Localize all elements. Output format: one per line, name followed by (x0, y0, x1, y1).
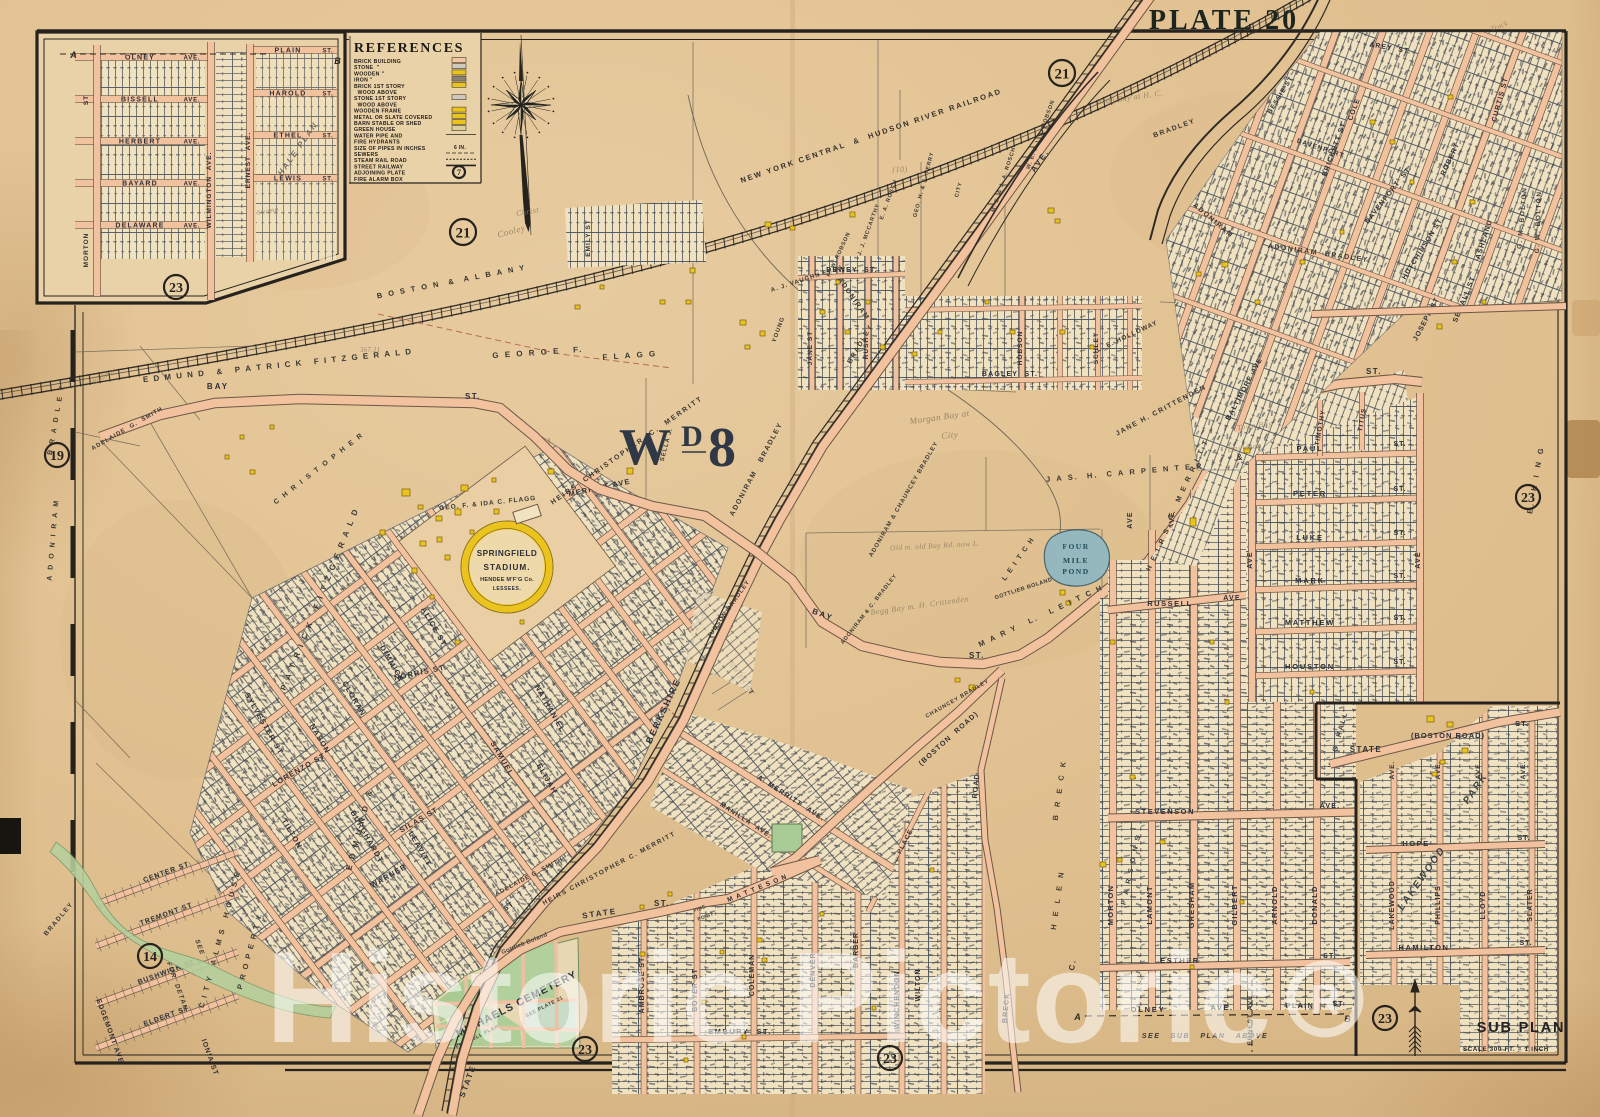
svg-text:WILMINGTON AVE.: WILMINGTON AVE. (206, 152, 213, 229)
svg-text:HOBSON: HOBSON (1017, 331, 1024, 366)
svg-text:8: 8 (708, 417, 736, 479)
svg-text:ST.: ST. (1393, 530, 1406, 537)
svg-text:HOUSTON: HOUSTON (1285, 662, 1335, 671)
svg-text:AVE.: AVE. (1389, 761, 1396, 780)
svg-text:ETHEL: ETHEL (274, 133, 303, 140)
svg-text:RUSSELL: RUSSELL (1147, 599, 1193, 608)
svg-text:GILBERT: GILBERT (1230, 884, 1239, 925)
svg-text:PLATE 20: PLATE 20 (1149, 5, 1299, 36)
svg-text:EMILY ST: EMILY ST (585, 219, 592, 256)
svg-text:MORTON: MORTON (83, 233, 90, 268)
svg-text:AVE: AVE (1415, 551, 1422, 568)
svg-text:ADJOINING PLATE: ADJOINING PLATE (354, 171, 406, 177)
svg-text:ST.: ST. (1393, 573, 1406, 580)
svg-text:FIRE HYDRANTS: FIRE HYDRANTS (354, 140, 400, 146)
svg-text:ST.: ST. (1366, 367, 1382, 376)
svg-text:HAROLD: HAROLD (269, 91, 306, 98)
svg-text:OLNEY: OLNEY (125, 55, 155, 62)
svg-text:WOOD ABOVE: WOOD ABOVE (354, 90, 397, 96)
svg-text:ST.: ST. (1393, 486, 1406, 493)
svg-text:MILE: MILE (1063, 556, 1089, 565)
svg-text:PETER: PETER (1293, 489, 1327, 498)
svg-text:ST.: ST. (1323, 953, 1337, 960)
svg-text:PLAIN: PLAIN (275, 48, 302, 55)
svg-text:ST.: ST. (1393, 441, 1406, 448)
svg-text:ST.: ST. (322, 49, 333, 55)
svg-text:STADIUM.: STADIUM. (484, 563, 531, 572)
svg-text:AVE.: AVE. (184, 98, 201, 104)
svg-text:ST.: ST. (1515, 719, 1529, 728)
svg-text:ST.: ST. (322, 134, 333, 140)
svg-text:AVE: AVE (1247, 551, 1254, 568)
svg-text:SEWERS: SEWERS (354, 152, 379, 158)
svg-text:BARN STABLE OR SHED: BARN STABLE OR SHED (354, 121, 422, 127)
svg-text:AVE.: AVE. (1520, 761, 1527, 780)
svg-text:367.11: 367.11 (359, 346, 381, 354)
svg-text:LAMONT: LAMONT (1145, 885, 1154, 924)
svg-text:STEAM RAIL ROAD: STEAM RAIL ROAD (354, 158, 407, 164)
svg-text:23: 23 (169, 281, 183, 296)
svg-text:SCALE 300 FT. = 1 INCH: SCALE 300 FT. = 1 INCH (1463, 1047, 1549, 1053)
svg-text:ERNEST AVE.: ERNEST AVE. (245, 132, 252, 189)
svg-text:Historic Pictoric: Historic Pictoric (266, 926, 1272, 1070)
svg-text:BRICK BUILDING: BRICK BUILDING (354, 59, 401, 65)
svg-text:A: A (69, 50, 78, 60)
svg-text:AVE: AVE (1223, 595, 1240, 602)
svg-text:ST.: ST. (1519, 940, 1532, 947)
svg-text:&: & (1237, 453, 1244, 462)
svg-text:ST.: ST. (465, 392, 481, 401)
svg-text:BAGLEY ST.: BAGLEY ST. (982, 371, 1038, 378)
svg-text:ST.: ST. (1517, 835, 1530, 842)
svg-text:ST.: ST. (1393, 615, 1406, 622)
svg-text:ARNOLD: ARNOLD (1270, 885, 1279, 924)
svg-text:BRICK 1ST STORY: BRICK 1ST STORY (354, 84, 405, 90)
svg-text:SUB PLAN: SUB PLAN (1477, 1020, 1566, 1036)
svg-text:STREET RAILWAY: STREET RAILWAY (354, 164, 403, 170)
svg-text:ST.: ST. (654, 899, 670, 908)
svg-text:HERBERT: HERBERT (119, 139, 161, 146)
svg-text:23: 23 (1521, 491, 1535, 506)
svg-text:STONE ”: STONE ” (354, 65, 380, 71)
svg-text:14: 14 (143, 950, 157, 965)
svg-text:STATE: STATE (1350, 745, 1383, 754)
svg-text:LEWIS: LEWIS (274, 176, 302, 183)
svg-text:AVE.: AVE. (1320, 803, 1341, 810)
svg-text:23: 23 (1378, 1012, 1392, 1027)
svg-text:ST.: ST. (322, 177, 333, 183)
svg-text:ST.: ST. (969, 651, 985, 660)
svg-text:(BOSTON ROAD): (BOSTON ROAD) (1411, 731, 1485, 740)
svg-text:PHILLIPS: PHILLIPS (1435, 885, 1442, 925)
svg-text:(10): (10) (892, 165, 907, 174)
svg-text:AVE: AVE (1127, 511, 1134, 528)
svg-text:WATER PIPE AND: WATER PIPE AND (354, 133, 403, 139)
svg-text:MARK: MARK (1295, 576, 1325, 585)
svg-text:21: 21 (1055, 66, 1070, 82)
svg-text:MATTHEW: MATTHEW (1285, 618, 1335, 627)
svg-text:LESSEES.: LESSEES. (493, 586, 522, 592)
svg-text:REFERENCES: REFERENCES (354, 41, 464, 56)
svg-text:GREEN HOUSE: GREEN HOUSE (354, 127, 396, 133)
svg-text:WOODEN FRAME: WOODEN FRAME (354, 109, 402, 115)
svg-text:HENDEE M'F'G Co.: HENDEE M'F'G Co. (480, 577, 534, 583)
svg-text:19: 19 (50, 449, 64, 464)
svg-text:HAMILTON: HAMILTON (1399, 943, 1450, 952)
svg-text:IRON ”: IRON ” (354, 78, 373, 84)
svg-text:WOOD ABOVE: WOOD ABOVE (354, 102, 397, 108)
svg-text:DONALD: DONALD (1310, 885, 1319, 924)
svg-text:W: W (619, 419, 671, 476)
svg-text:JANE ST: JANE ST (807, 331, 814, 365)
svg-text:R: R (1310, 976, 1340, 1023)
svg-text:7: 7 (457, 168, 461, 177)
svg-text:21: 21 (456, 225, 471, 241)
svg-text:AVE.: AVE. (184, 56, 201, 62)
svg-text:AVE.: AVE. (184, 140, 201, 146)
svg-text:MORTON: MORTON (1106, 885, 1115, 925)
svg-text:6 IN.: 6 IN. (454, 145, 466, 151)
svg-text:B: B (334, 56, 342, 66)
svg-text:ST.: ST. (322, 92, 333, 98)
svg-text:SLATER: SLATER (1527, 888, 1534, 921)
svg-text:AVE.: AVE. (184, 224, 201, 230)
svg-text:LUKE: LUKE (1296, 533, 1324, 542)
svg-text:LLOYD: LLOYD (1480, 891, 1487, 920)
svg-text:FOUR: FOUR (1062, 542, 1089, 551)
svg-text:SPRINGFIELD: SPRINGFIELD (477, 549, 538, 558)
svg-text:STEVENSON: STEVENSON (1135, 807, 1195, 816)
svg-text:BAY: BAY (207, 382, 229, 391)
svg-text:STONE 1ST STORY: STONE 1ST STORY (354, 96, 406, 102)
svg-text:GRESHAM: GRESHAM (1187, 882, 1196, 929)
svg-text:DELAWARE: DELAWARE (115, 223, 164, 230)
svg-text:FIRE ALARM BOX: FIRE ALARM BOX (354, 177, 403, 183)
svg-text:METAL OR SLATE COVERED: METAL OR SLATE COVERED (354, 115, 432, 121)
svg-text:AVE.: AVE. (184, 182, 201, 188)
svg-text:BISSELL: BISSELL (121, 97, 159, 104)
svg-text:ST: ST (83, 95, 90, 105)
svg-text:HOPE: HOPE (1402, 839, 1429, 848)
svg-text:SIZE OF PIPES IN INCHES: SIZE OF PIPES IN INCHES (354, 146, 426, 152)
svg-text:BAYARD: BAYARD (122, 181, 158, 188)
svg-text:WOODEN ”: WOODEN ” (354, 71, 384, 77)
svg-text:D: D (681, 420, 703, 453)
svg-text:POND: POND (1062, 567, 1089, 576)
svg-text:ST.: ST. (1393, 659, 1406, 666)
svg-text:LAKEWOOD: LAKEWOOD (1389, 880, 1396, 930)
svg-text:City: City (941, 429, 959, 440)
